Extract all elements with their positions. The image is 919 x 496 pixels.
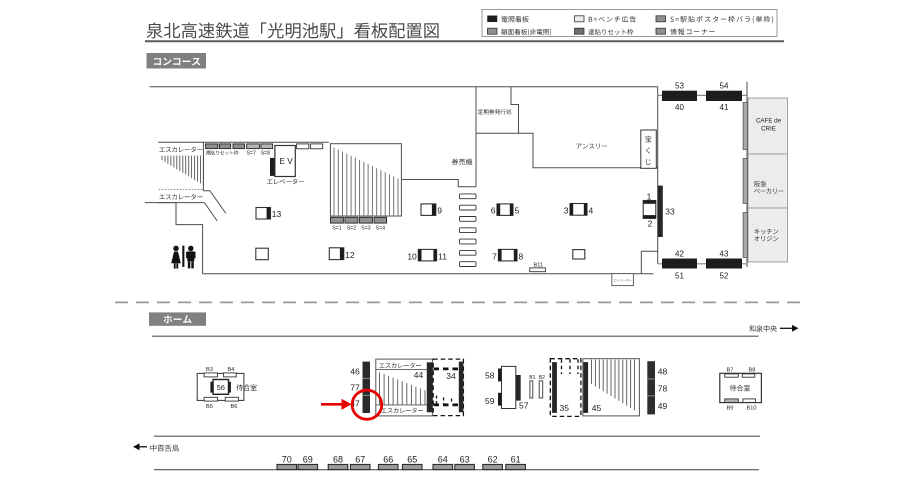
svg-text:B1: B1 [529,375,535,381]
svg-text:B2: B2 [539,375,545,381]
svg-text:6: 6 [491,206,496,216]
svg-text:7: 7 [492,252,497,262]
svg-text:53: 53 [675,81,684,90]
svg-text:S=4: S=4 [376,226,385,232]
svg-text:57: 57 [519,400,529,410]
svg-text:9: 9 [437,206,442,216]
svg-text:78: 78 [658,383,668,393]
svg-text:59: 59 [485,396,495,406]
svg-text:11: 11 [438,252,447,262]
svg-text:44: 44 [414,370,424,380]
svg-text:70: 70 [282,455,292,465]
svg-text:CRIE: CRIE [761,126,776,133]
svg-text:B7: B7 [727,367,734,373]
svg-text:65: 65 [407,455,417,465]
svg-text:34: 34 [446,371,456,381]
svg-text:42: 42 [675,249,684,258]
svg-text:2: 2 [648,219,653,229]
svg-text:51: 51 [675,271,684,280]
svg-text:CAFE de: CAFE de [756,118,782,125]
svg-text:8: 8 [519,252,524,262]
svg-text:10: 10 [407,252,417,262]
svg-text:77: 77 [350,382,360,392]
svg-text:58: 58 [485,371,495,381]
svg-text:4: 4 [589,206,594,216]
svg-text:13: 13 [272,209,282,219]
svg-text:B6: B6 [231,404,238,410]
svg-text:49: 49 [658,401,668,411]
svg-text:1: 1 [647,191,652,201]
svg-text:61: 61 [511,455,521,465]
svg-text:41: 41 [720,103,729,112]
svg-text:35: 35 [560,403,570,413]
svg-text:64: 64 [438,455,448,465]
svg-text:69: 69 [303,455,313,465]
svg-text:S=7: S=7 [247,151,256,157]
svg-text:B3: B3 [206,367,213,373]
svg-text:63: 63 [460,455,470,465]
svg-text:66: 66 [383,455,393,465]
svg-text:46: 46 [350,366,360,376]
svg-text:S=1: S=1 [332,226,341,232]
svg-text:40: 40 [675,103,684,112]
svg-text:S=2: S=2 [347,226,356,232]
svg-text:B10: B10 [747,405,757,411]
svg-text:43: 43 [720,249,729,258]
svg-text:S=3: S=3 [361,226,370,232]
svg-text:B11: B11 [534,262,544,268]
svg-text:12: 12 [345,250,355,260]
svg-text:56: 56 [217,383,225,392]
svg-text:68: 68 [333,455,343,465]
svg-text:B5: B5 [206,404,213,410]
svg-text:67: 67 [355,455,365,465]
svg-text:54: 54 [720,81,729,90]
svg-text:52: 52 [720,271,729,280]
svg-text:62: 62 [488,455,498,465]
svg-text:45: 45 [592,403,602,413]
svg-text:B4: B4 [228,367,235,373]
svg-text:S=8: S=8 [261,151,270,157]
svg-text:B9: B9 [727,405,734,411]
svg-text:E V: E V [280,157,294,166]
svg-text:5: 5 [515,206,520,216]
svg-text:3: 3 [564,206,569,216]
svg-text:48: 48 [658,367,668,377]
svg-text:B8: B8 [749,367,756,373]
svg-text:33: 33 [665,206,675,216]
